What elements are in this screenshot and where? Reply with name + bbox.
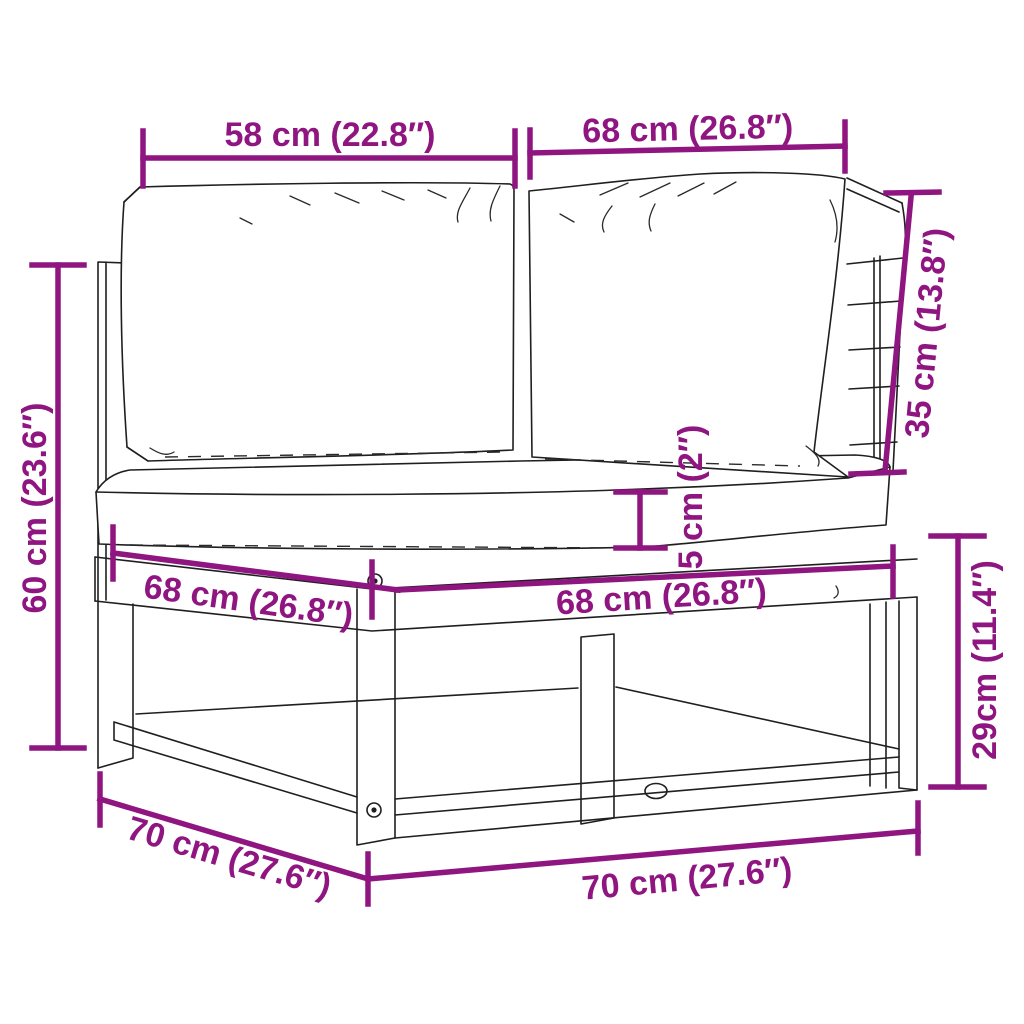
dim-label: 5 cm (2″) bbox=[672, 425, 710, 570]
cushion-outline bbox=[121, 183, 514, 461]
bottom-shelf-inner-edges bbox=[136, 687, 899, 749]
dim-tick-bottom bbox=[851, 472, 904, 474]
dim-base-depth: 70 cm (27.6″) bbox=[100, 774, 368, 906]
dimension-diagram: 58 cm (22.8″) 68 cm (26.8″) 35 cm (13.8″… bbox=[0, 0, 1024, 1024]
front-left-post bbox=[357, 589, 395, 845]
middle-back-post bbox=[581, 634, 614, 824]
apron-hole bbox=[645, 784, 667, 799]
dim-label: 60 cm (23.6″) bbox=[16, 403, 54, 614]
dim-label: 29cm (11.4″) bbox=[966, 560, 1004, 760]
dim-base-height: 29cm (11.4″) bbox=[931, 536, 1004, 787]
dim-label: 58 cm (22.8″) bbox=[225, 116, 436, 154]
dim-back-width-right: 68 cm (26.8″) bbox=[530, 108, 845, 177]
back-cushion-left bbox=[121, 183, 514, 461]
dim-overall-height: 60 cm (23.6″) bbox=[16, 265, 84, 748]
screw-bottom bbox=[367, 803, 381, 817]
diagram-canvas: 58 cm (22.8″) 68 cm (26.8″) 35 cm (13.8″… bbox=[0, 0, 1024, 1024]
dim-base-width: 70 cm (27.6″) bbox=[368, 803, 918, 908]
dim-label: 68 cm (26.8″) bbox=[582, 108, 794, 151]
panel-front-edge bbox=[874, 256, 880, 471]
base-bottom-edge bbox=[395, 790, 917, 838]
dim-back-width-left: 58 cm (22.8″) bbox=[143, 116, 515, 186]
sofa-line-art bbox=[95, 173, 917, 845]
bottom-shelf-left-band bbox=[114, 722, 357, 813]
front-right-post bbox=[899, 597, 917, 790]
back-right-post bbox=[870, 602, 886, 788]
dim-backrest-height: 35 cm (13.8″) bbox=[851, 192, 956, 474]
dim-seat-width-front: 68 cm (26.8″) bbox=[398, 547, 893, 622]
dim-tick-top bbox=[886, 192, 939, 193]
